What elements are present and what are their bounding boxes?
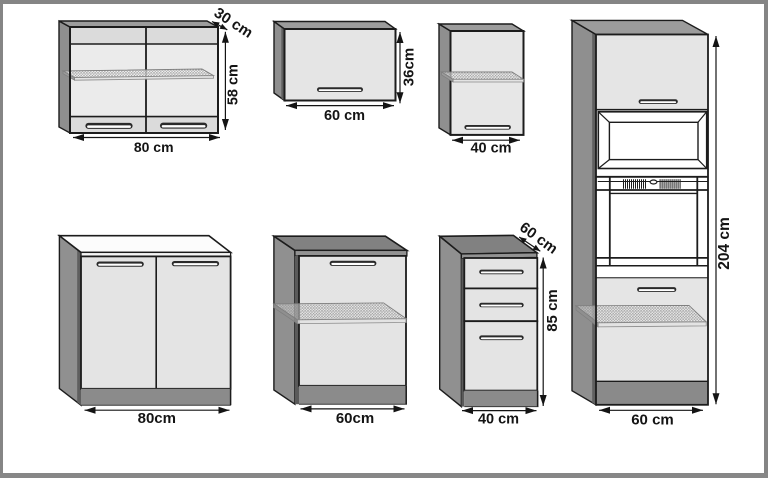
- svg-text:60cm: 60cm: [336, 410, 374, 427]
- svg-text:40 cm: 40 cm: [478, 412, 519, 428]
- svg-text:204 cm: 204 cm: [716, 217, 733, 270]
- svg-text:40 cm: 40 cm: [470, 140, 511, 156]
- svg-text:36cm: 36cm: [400, 48, 417, 86]
- svg-text:60 cm: 60 cm: [324, 108, 365, 124]
- svg-text:60 cm: 60 cm: [631, 411, 674, 428]
- svg-text:80cm: 80cm: [138, 410, 176, 427]
- svg-text:85 cm: 85 cm: [544, 289, 561, 332]
- svg-text:58 cm: 58 cm: [226, 64, 242, 105]
- svg-text:80 cm: 80 cm: [134, 139, 174, 155]
